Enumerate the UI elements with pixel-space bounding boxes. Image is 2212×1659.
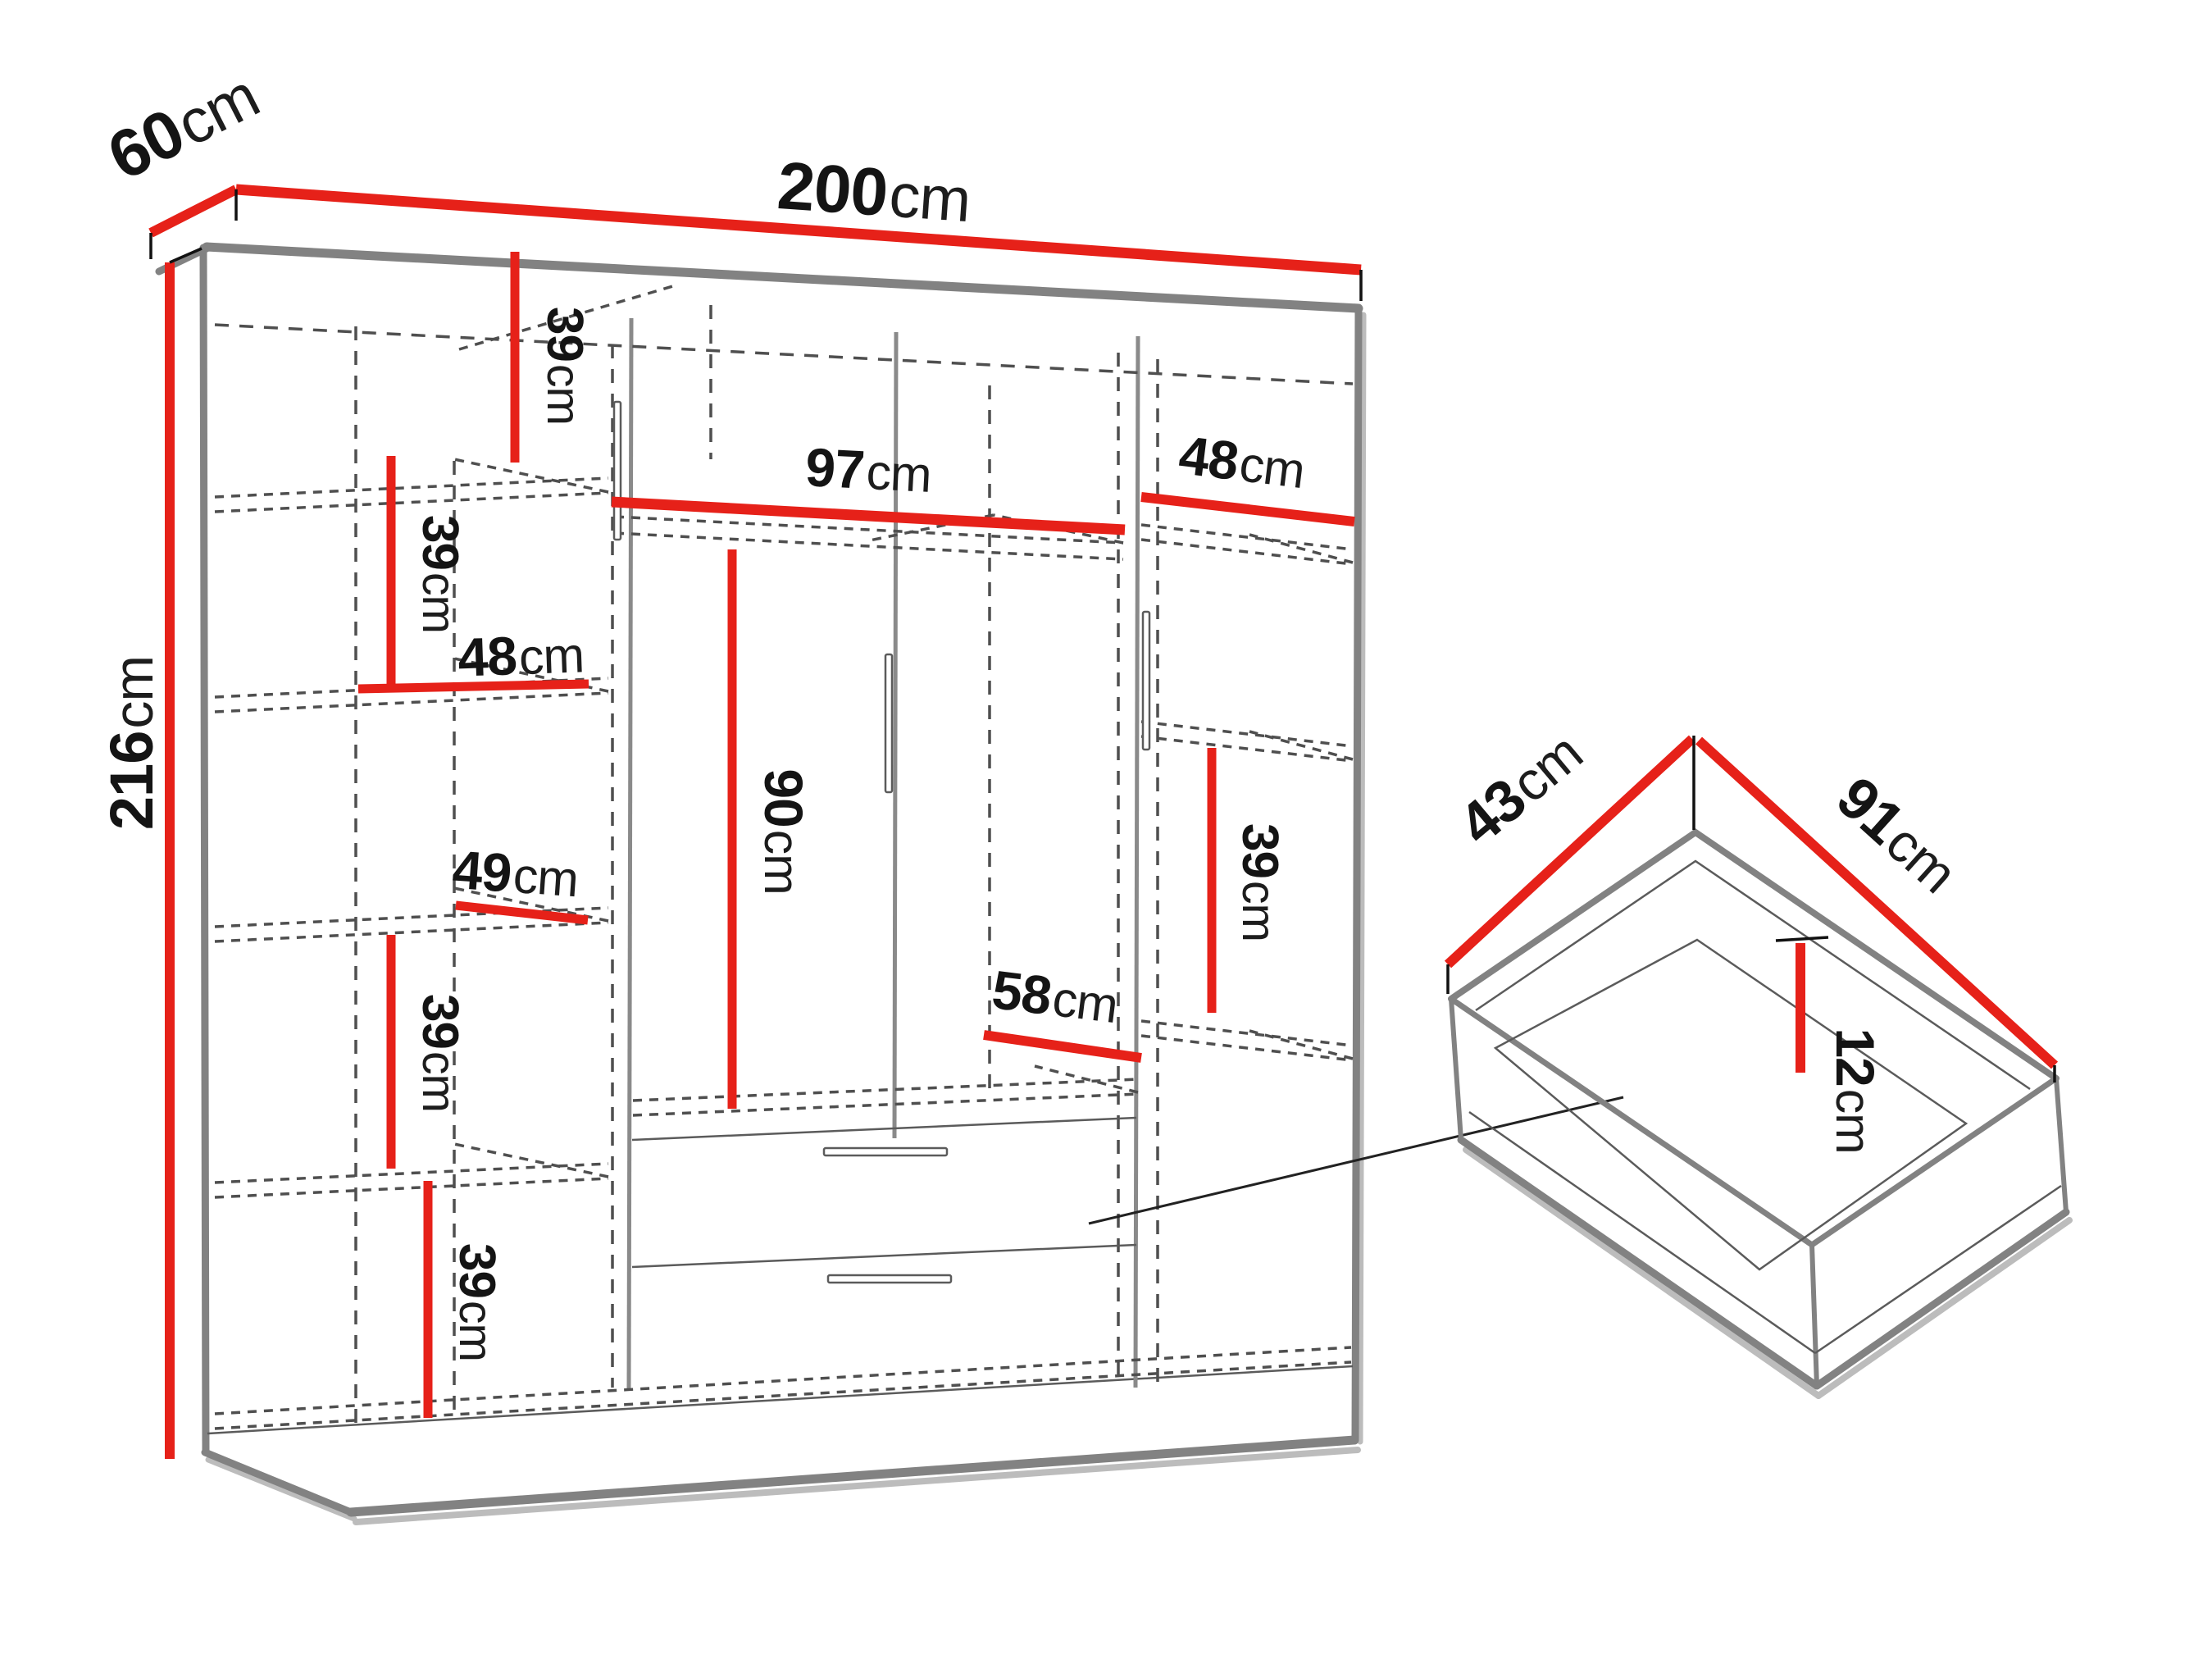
- door-handle-left: [614, 402, 621, 540]
- wardrobe-diagram-svg: 60cm 200cm 216cm 39cm 39cm 48cm 49cm 39c…: [0, 0, 2212, 1659]
- dim-width-label: 200cm: [775, 148, 972, 236]
- shelf-1-front-dashed: [215, 478, 608, 497]
- door-handle-middle: [885, 654, 892, 792]
- dim-97-line: [612, 502, 1125, 530]
- drawer-shadow-right: [1818, 1220, 2069, 1396]
- plinth-bottom-edge: [351, 1440, 1354, 1512]
- shelf-1-depth-dashed: [454, 459, 608, 492]
- shelf-2-back-dashed: [215, 693, 608, 712]
- drawer-top-back-edges: [1451, 832, 2056, 1078]
- drawer-1-handle: [824, 1148, 947, 1155]
- drawer-inner-rim: [1476, 861, 2030, 1089]
- partition-left: [629, 318, 631, 1390]
- floor-front-dashed: [215, 1347, 1351, 1414]
- dim-97-label: 97cm: [804, 436, 933, 504]
- drawer-1-top-edge: [632, 1118, 1136, 1140]
- dim-shelf2-39-label: 39cm: [412, 515, 468, 633]
- dim-58-label: 58cm: [989, 959, 1121, 1034]
- dim-39-right-label: 39cm: [1231, 823, 1288, 941]
- left-edge: [203, 248, 206, 1452]
- drawer-left-corner-edge: [1451, 999, 1461, 1140]
- right-shelf-1-front-dashed: [1141, 525, 1353, 549]
- right-shelf-2-front-dashed: [1141, 722, 1353, 746]
- right-edge: [1355, 309, 1359, 1440]
- shelf-1-back-dashed: [215, 493, 608, 512]
- bottom-shadow: [356, 1450, 1358, 1522]
- dim-height-label: 216cm: [98, 656, 166, 830]
- drawer-shadow-left: [1466, 1150, 1818, 1396]
- partition-right: [1136, 336, 1138, 1388]
- right-shelf-2-back-dashed: [1141, 736, 1353, 761]
- drawer-2-top-edge: [632, 1245, 1136, 1267]
- wardrobe-drawers: [614, 402, 1149, 1283]
- tick-12-top: [1776, 937, 1828, 941]
- dim-49-label: 49cm: [451, 839, 580, 909]
- door-handle-right: [1143, 612, 1149, 750]
- drawer-top-shelf-back-dashed: [633, 1094, 1138, 1115]
- drawer-bottom-left-edge: [1461, 1140, 1817, 1386]
- floor-back-dashed: [215, 1362, 1351, 1429]
- side-bottom-edge: [205, 1452, 351, 1512]
- shelf-4-depth-dashed: [454, 1144, 608, 1177]
- plinth-top-edge: [207, 1366, 1353, 1433]
- dim-43-label: 43cm: [1447, 719, 1595, 858]
- shelf-4-front-dashed: [215, 1164, 608, 1183]
- dim-shelf5-39-label: 39cm: [448, 1243, 505, 1361]
- top-back-edge-dashed: [215, 325, 1353, 384]
- drawer-front-right-groove: [1815, 1186, 2061, 1353]
- dim-shelf1-39-label: 39cm: [536, 307, 593, 425]
- rail-back-dashed: [615, 533, 1123, 559]
- drawer-right-corner-edge: [2056, 1078, 2066, 1212]
- dim-depth-label: 60cm: [97, 57, 270, 195]
- drawer-2-handle: [828, 1275, 951, 1283]
- dim-48-right-label: 48cm: [1176, 424, 1308, 499]
- drawer-detail-box: [1451, 832, 2069, 1396]
- side-bottom-shadow: [208, 1460, 354, 1519]
- right-shelf-1-back-dashed: [1141, 540, 1353, 564]
- diagram-canvas: 60cm 200cm 216cm 39cm 39cm 48cm 49cm 39c…: [0, 0, 2212, 1659]
- drawer-top-shelf-depth-dashed: [1035, 1066, 1138, 1092]
- drawer-bottom-right-edge: [1817, 1212, 2066, 1386]
- dim-shelf4-39-label: 39cm: [412, 994, 468, 1112]
- right-shelf-3-back-dashed: [1141, 1036, 1353, 1060]
- right-shelf-3-front-dashed: [1141, 1021, 1353, 1046]
- shelf-3-back-dashed: [215, 923, 608, 941]
- drawer-front-left-groove: [1469, 1112, 1815, 1353]
- dim-90-label: 90cm: [753, 768, 814, 894]
- dim-depth-line: [151, 189, 236, 233]
- dim-48-left-label: 48cm: [457, 622, 585, 687]
- dim-48-right-line: [1141, 497, 1354, 522]
- dim-91-label: 91cm: [1824, 764, 1970, 905]
- shelf-4-back-dashed: [215, 1178, 608, 1197]
- dimension-ticks: [151, 189, 1361, 301]
- drawer-front-corner-edge: [1812, 1245, 1817, 1386]
- drawer-top-left-edge: [1451, 999, 1812, 1245]
- dim-12-label: 12cm: [1825, 1028, 1886, 1153]
